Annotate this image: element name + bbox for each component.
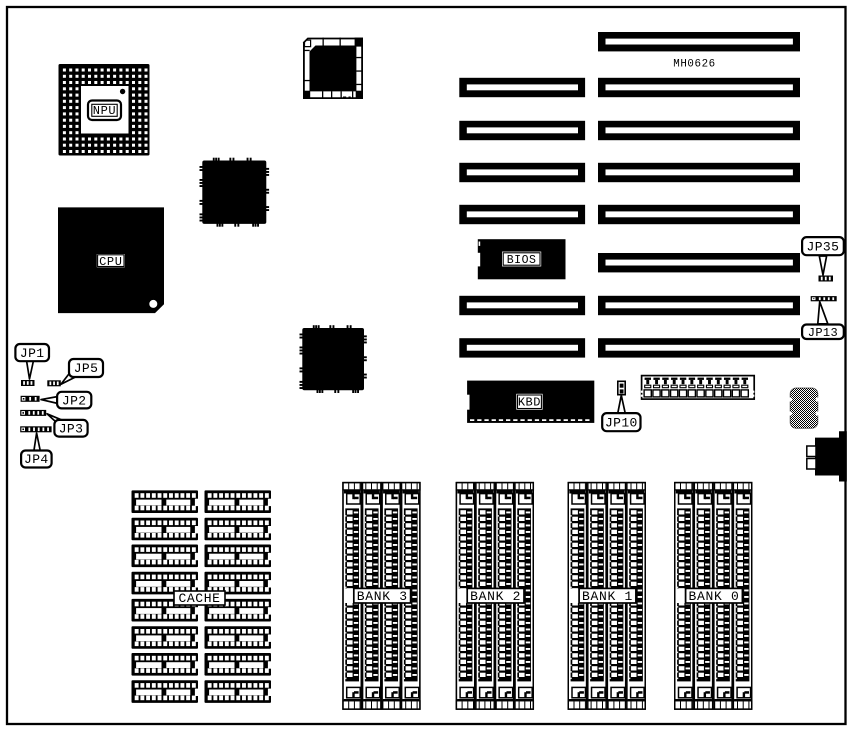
- svg-text:NPU: NPU: [93, 104, 116, 118]
- svg-text:JP5: JP5: [74, 361, 99, 376]
- svg-text:JP10: JP10: [605, 415, 638, 430]
- svg-text:BANK 2: BANK 2: [470, 589, 521, 604]
- svg-text:JP13: JP13: [808, 326, 838, 340]
- svg-text:BANK 1: BANK 1: [582, 589, 633, 604]
- svg-text:BIOS: BIOS: [507, 254, 537, 267]
- svg-text:MH0626: MH0626: [673, 59, 715, 71]
- svg-text:JP35: JP35: [807, 239, 840, 254]
- svg-text:JP3: JP3: [59, 421, 84, 436]
- svg-text:BANK 0: BANK 0: [688, 589, 739, 604]
- svg-text:BANK 3: BANK 3: [357, 589, 408, 604]
- svg-text:KBD: KBD: [518, 396, 541, 410]
- svg-text:JP2: JP2: [62, 393, 87, 408]
- svg-text:CPU: CPU: [99, 255, 122, 269]
- svg-text:JP4: JP4: [24, 452, 49, 467]
- svg-text:JP1: JP1: [20, 346, 45, 361]
- svg-text:CACHE: CACHE: [178, 591, 220, 606]
